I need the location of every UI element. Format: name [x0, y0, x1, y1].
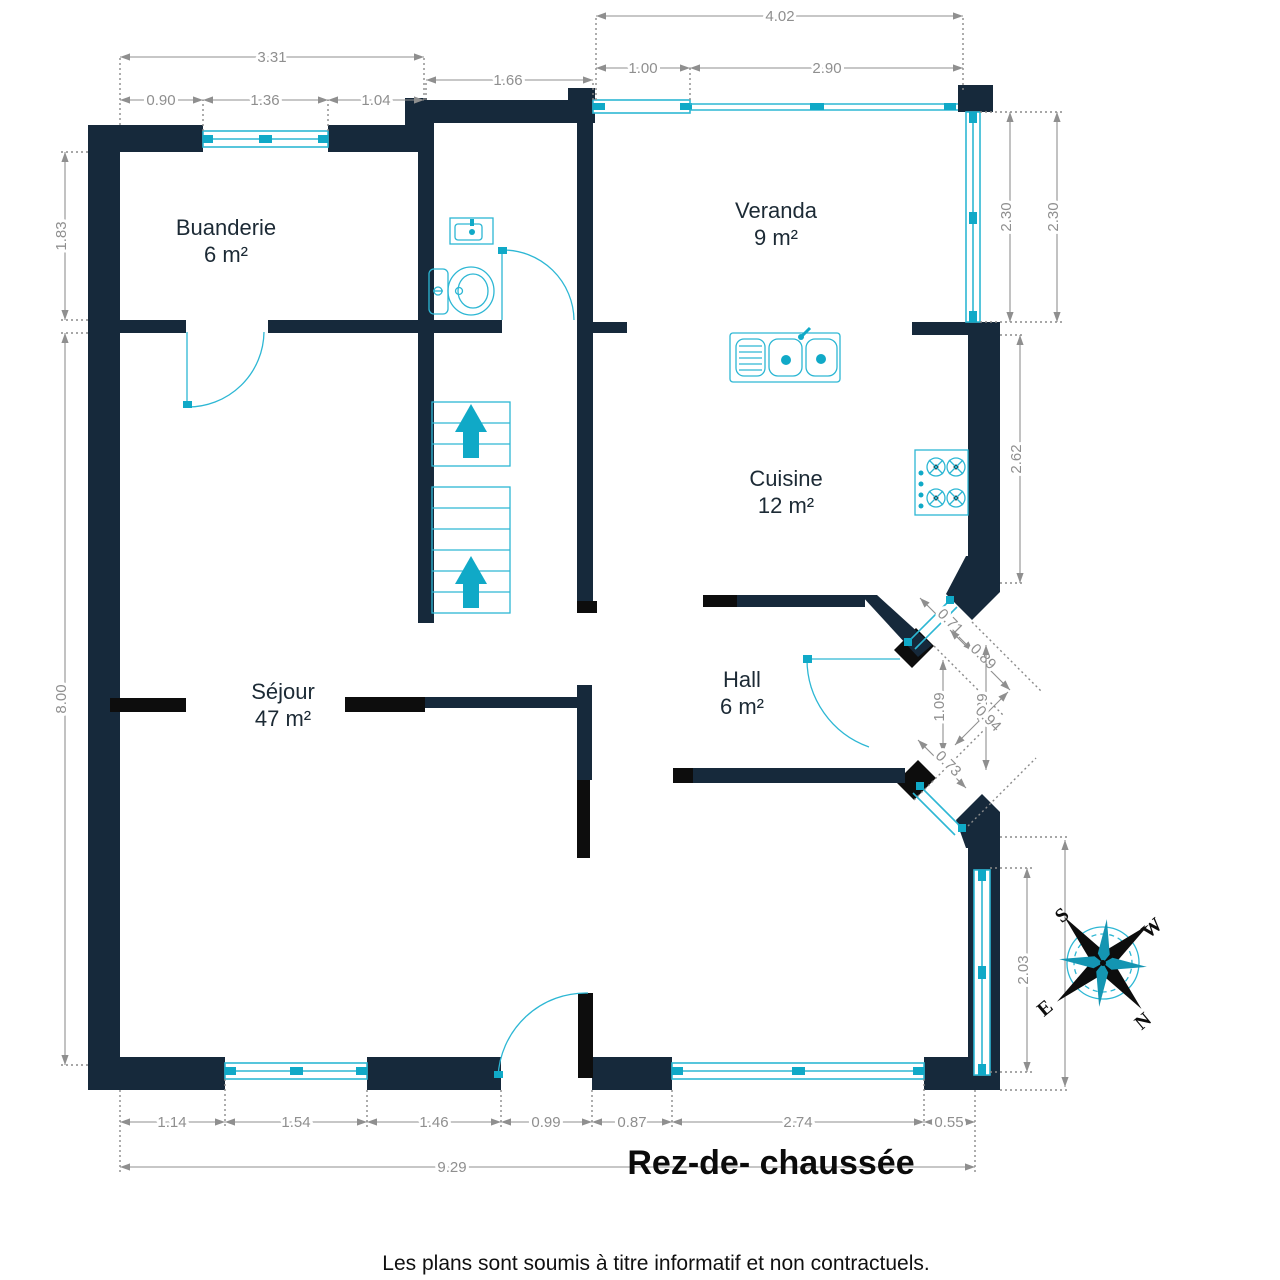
dim-1-54: 1.54: [281, 1114, 310, 1131]
window-hall-bottom: [672, 1063, 924, 1079]
room-area-buanderie: 6 m²: [204, 242, 248, 267]
dim-2-30-b: 2.30: [1045, 202, 1062, 231]
room-label-sejour: Séjour: [251, 679, 315, 704]
dim-0-55: 0.55: [934, 1114, 963, 1131]
dim-0-99: 0.99: [531, 1114, 560, 1131]
door-buanderie-sejour: [183, 332, 264, 408]
compass-west-label: W: [1137, 914, 1166, 944]
doors: [183, 247, 900, 1078]
dim-1-83: 1.83: [53, 221, 70, 250]
dim-1-36: 1.36: [250, 92, 279, 109]
dim-4-02: 4.02: [765, 8, 794, 25]
compass-east-label: E: [1033, 996, 1057, 1021]
room-area-hall: 6 m²: [720, 694, 764, 719]
floor-plan-page: 3.31 0.90 1.36 1.04 1.66 4.02 1.00 2.90 …: [0, 0, 1280, 1280]
room-label-buanderie: Buanderie: [176, 215, 276, 240]
dim-0-89: 0.89: [967, 640, 1000, 673]
stove-icon: [915, 450, 968, 515]
dim-8-00: 8.00: [53, 684, 70, 713]
room-label-veranda: Veranda: [735, 198, 818, 223]
room-area-sejour: 47 m²: [255, 706, 311, 731]
disclaimer-text: Les plans sont soumis à titre informatif…: [382, 1252, 929, 1275]
window-veranda-right: [966, 112, 980, 322]
window-sejour-bottom: [225, 1063, 367, 1079]
toilet-icon: [429, 267, 494, 315]
room-label-cuisine: Cuisine: [749, 466, 822, 491]
window-veranda-top: [593, 100, 958, 113]
room-label-hall: Hall: [723, 667, 761, 692]
dim-2-03: 2.03: [1015, 955, 1032, 984]
dim-2-74: 2.74: [783, 1114, 812, 1131]
extension-lines: [60, 16, 1068, 1172]
compass-north-label: N: [1131, 1008, 1157, 1034]
dim-1-00: 1.00: [628, 60, 657, 77]
dim-1-04: 1.04: [361, 92, 390, 109]
dim-2-62: 2.62: [1008, 444, 1025, 473]
dim-1-14: 1.14: [157, 1114, 186, 1131]
kitchen-sink-icon: [730, 328, 840, 382]
dim-3-31: 3.31: [257, 49, 286, 66]
washbasin-icon: [450, 218, 493, 244]
wc-fixtures: [429, 218, 494, 315]
dim-1-46: 1.46: [419, 1114, 448, 1131]
window-buanderie: [203, 131, 328, 147]
dim-9-29: 9.29: [437, 1159, 466, 1176]
room-labels: Buanderie 6 m² Veranda 9 m² Cuisine 12 m…: [176, 198, 823, 731]
window-sejour-right: [974, 870, 990, 1075]
door-entrance-hall: [803, 655, 900, 747]
window-bay-lower: [913, 782, 966, 835]
dim-2-30-a: 2.30: [998, 202, 1015, 231]
page-title: Rez-de- chaussée: [627, 1144, 914, 1182]
dim-0-73: 0.73: [932, 747, 965, 780]
windows: [203, 100, 990, 1079]
floor-plan-drawing: 3.31 0.90 1.36 1.04 1.66 4.02 1.00 2.90 …: [0, 0, 1280, 1280]
room-area-veranda: 9 m²: [754, 225, 798, 250]
stairs-up-arrow-icon: [455, 404, 487, 458]
compass-rose-icon: S W N E: [1015, 875, 1190, 1050]
dimensions: 3.31 0.90 1.36 1.04 1.66 4.02 1.00 2.90 …: [53, 8, 1065, 1176]
door-sejour-garden: [494, 993, 593, 1078]
dim-1-66: 1.66: [493, 72, 522, 89]
door-wc: [498, 247, 574, 320]
dim-0-90: 0.90: [146, 92, 175, 109]
dim-0-87: 0.87: [617, 1114, 646, 1131]
room-area-cuisine: 12 m²: [758, 493, 814, 518]
stairs-up-arrow-icon: [455, 556, 487, 608]
dim-2-90: 2.90: [812, 60, 841, 77]
dim-1-09: 1.09: [931, 692, 948, 721]
staircase: [432, 402, 510, 613]
